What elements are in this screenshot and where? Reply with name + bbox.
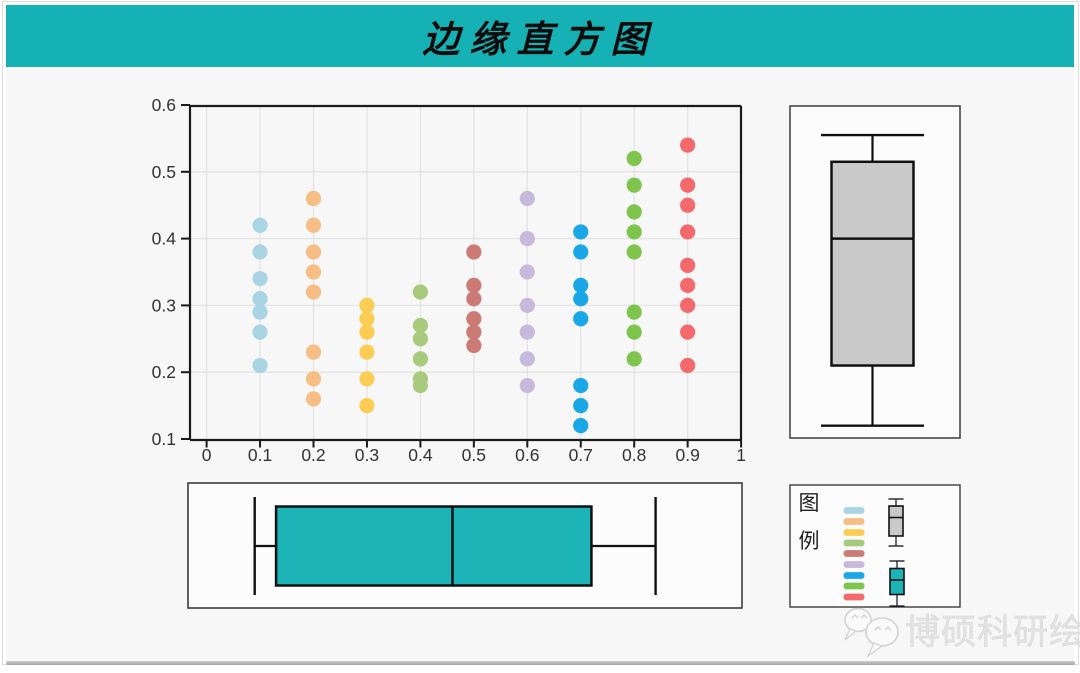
legend-swatch <box>844 540 865 547</box>
scatter-point <box>306 218 321 233</box>
scatter-point <box>627 204 642 219</box>
x-tick-label: 0.7 <box>569 445 593 465</box>
scatter-point <box>252 325 267 340</box>
boxplot-box <box>276 507 591 586</box>
scatter-point <box>520 351 535 366</box>
scatter-point <box>413 351 428 366</box>
scatter-point <box>573 224 588 239</box>
scatter-point <box>413 284 428 299</box>
legend-title-char: 图 <box>799 491 820 515</box>
scatter-point <box>680 358 695 373</box>
legend-swatch <box>844 572 865 579</box>
x-tick-label: 0 <box>202 445 212 465</box>
scatter-point <box>252 358 267 373</box>
x-tick-label: 0.3 <box>355 445 379 465</box>
scatter-point <box>306 191 321 206</box>
scatter-point <box>252 244 267 259</box>
scatter-point <box>466 278 481 293</box>
page: 边缘直方图 00.10.20.30.40.50.60.70.80.910.10.… <box>0 0 1080 673</box>
scatter-point <box>359 345 374 360</box>
legend-swatch <box>844 550 865 557</box>
legend-swatch <box>844 529 865 536</box>
scatter-point <box>359 325 374 340</box>
scatter-point <box>573 311 588 326</box>
scatter-point <box>466 311 481 326</box>
scatter-point <box>413 318 428 333</box>
x-tick-label: 1 <box>736 445 746 465</box>
scatter-point <box>520 378 535 393</box>
y-tick-label: 0.3 <box>152 295 176 315</box>
scatter-point <box>359 398 374 413</box>
scatter-point <box>306 391 321 406</box>
scatter-point <box>627 224 642 239</box>
scatter-point <box>573 244 588 259</box>
scatter-point <box>627 244 642 259</box>
x-tick-label: 0.6 <box>515 445 539 465</box>
scatter-point <box>306 284 321 299</box>
x-tick-label: 0.9 <box>675 445 699 465</box>
wechat-icon <box>868 643 882 656</box>
boxplot-box <box>832 162 914 366</box>
scatter-point <box>306 244 321 259</box>
legend-title-char: 例 <box>799 529 820 553</box>
legend-swatch <box>844 518 865 525</box>
x-tick-label: 0.2 <box>301 445 325 465</box>
scatter-point <box>466 325 481 340</box>
x-tick-label: 0.8 <box>622 445 646 465</box>
y-tick-label: 0.5 <box>152 162 176 182</box>
y-tick-label: 0.2 <box>152 362 176 382</box>
y-tick-label: 0.4 <box>152 229 177 249</box>
wechat-icon <box>845 629 856 640</box>
scatter-point <box>466 291 481 306</box>
scatter-point <box>627 304 642 319</box>
scatter-point <box>306 264 321 279</box>
legend-swatch <box>844 561 865 568</box>
scatter-point <box>680 198 695 213</box>
scatter-point <box>573 278 588 293</box>
scatter-point <box>627 325 642 340</box>
x-tick-label: 0.5 <box>462 445 486 465</box>
scatter-point <box>520 325 535 340</box>
scatter-point <box>306 371 321 386</box>
marginal-histogram-figure: 00.10.20.30.40.50.60.70.80.910.10.20.30.… <box>0 0 1080 673</box>
scatter-point <box>520 231 535 246</box>
scatter-point <box>252 304 267 319</box>
scatter-point <box>627 178 642 193</box>
scatter-point <box>359 371 374 386</box>
legend-gray-boxplot-glyph <box>889 506 903 536</box>
y-tick-label: 0.6 <box>152 95 176 115</box>
x-tick-label: 0.4 <box>408 445 433 465</box>
scatter-point <box>680 258 695 273</box>
scatter-point <box>413 331 428 346</box>
scatter-point <box>466 338 481 353</box>
scatter-point <box>520 264 535 279</box>
scatter-point <box>520 298 535 313</box>
legend-swatch <box>844 594 865 601</box>
scatter-point <box>680 178 695 193</box>
scatter-point <box>252 291 267 306</box>
wechat-icon <box>866 618 898 646</box>
scatter-point <box>573 378 588 393</box>
scatter-point <box>680 325 695 340</box>
watermark-text: 博硕科研绘图 <box>905 613 1080 652</box>
legend-teal-boxplot-glyph <box>890 569 904 595</box>
scatter-point <box>520 191 535 206</box>
scatter-point <box>680 278 695 293</box>
scatter-point <box>466 244 481 259</box>
scatter-point <box>252 218 267 233</box>
scatter-point <box>359 311 374 326</box>
bottom-shadow <box>6 661 1075 665</box>
scatter-point <box>573 418 588 433</box>
x-tick-label: 0.1 <box>248 445 272 465</box>
scatter-point <box>306 345 321 360</box>
scatter-point <box>680 298 695 313</box>
scatter-point <box>359 298 374 313</box>
legend-swatch <box>844 583 865 590</box>
scatter-point <box>252 271 267 286</box>
scatter-point <box>573 291 588 306</box>
scatter-point <box>573 398 588 413</box>
legend-swatch <box>844 507 865 514</box>
y-tick-label: 0.1 <box>152 429 176 449</box>
scatter-point <box>680 137 695 152</box>
scatter-point <box>627 151 642 166</box>
scatter-point <box>413 378 428 393</box>
scatter-point <box>680 224 695 239</box>
scatter-point <box>627 351 642 366</box>
